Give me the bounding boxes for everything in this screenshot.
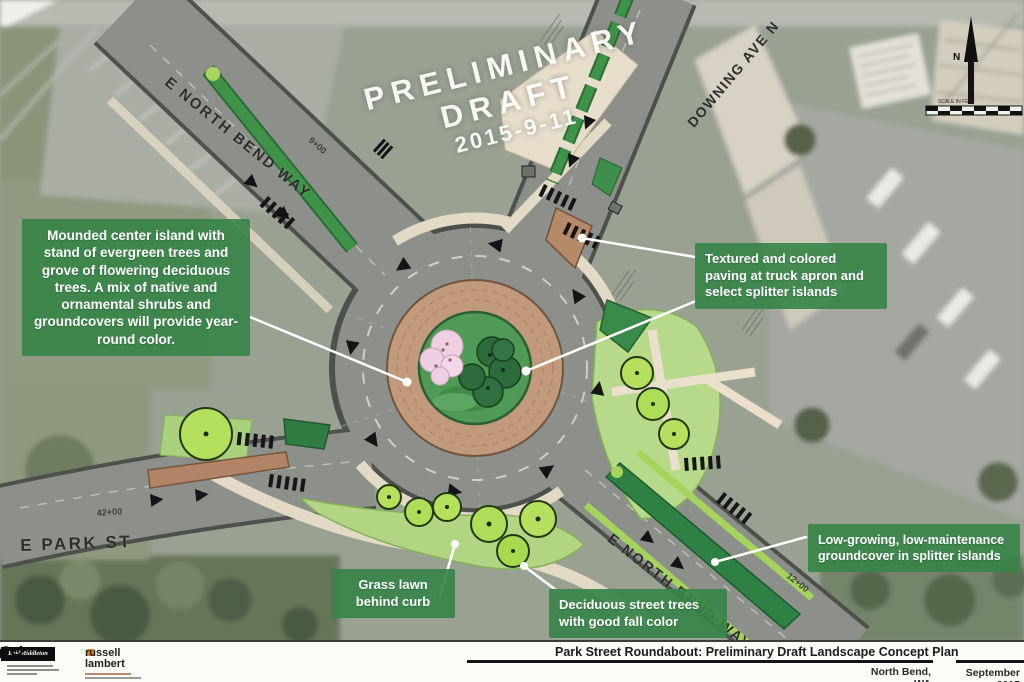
title-block: ReidMiddleton russell lambert Park Stree…: [0, 640, 1024, 682]
scale-label: SCALE IN FEET: [938, 99, 975, 105]
building: [930, 20, 1024, 135]
sheet-date: September 2015: [948, 667, 1020, 682]
fine-print-line: [7, 669, 59, 671]
swirl-logo-icon: [0, 642, 24, 662]
splitter-green-park: [284, 419, 330, 449]
landscape-firm-logo-line2: lambert: [85, 659, 145, 670]
fine-print-line: [7, 665, 53, 667]
callout-textured-paving: Textured and colored paving at truck apr…: [695, 243, 887, 309]
callout-groundcover: Low-growing, low-maintenance groundcover…: [808, 524, 1020, 572]
project-location: North Bend, WA: [853, 666, 931, 682]
station-label: 42+00: [96, 506, 122, 518]
fine-print-line: [7, 673, 37, 675]
sheet-title: Park Street Roundabout: Preliminary Draf…: [555, 645, 945, 659]
title-rule: [467, 660, 933, 663]
fine-print-line: [85, 673, 131, 675]
north-label: N: [953, 52, 960, 63]
callout-center-island: Mounded center island with stand of ever…: [22, 219, 250, 356]
callout-street-trees: Deciduous street trees with good fall co…: [549, 589, 727, 638]
concept-plan-sheet: 9+00 42+00 12+00 N SCALE IN FEET: [0, 0, 1024, 682]
callout-grass-lawn: Grass lawn behind curb: [331, 569, 455, 618]
street-label-park-st: E PARK ST: [20, 532, 133, 556]
title-rule: [956, 660, 1024, 663]
fine-print-line: [85, 677, 141, 679]
